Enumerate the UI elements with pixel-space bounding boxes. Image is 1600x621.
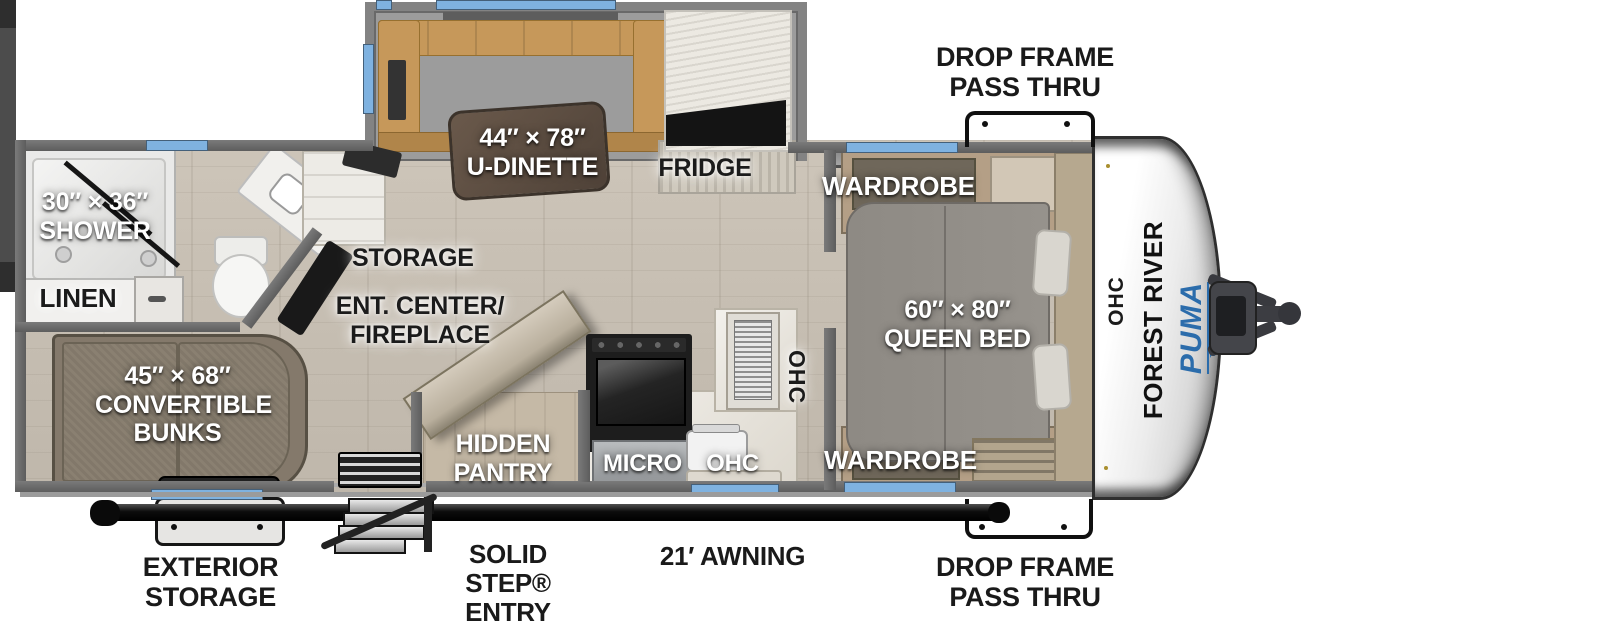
ent-center-label: ENT. CENTER/FIREPLACE <box>330 292 510 349</box>
bath-cabinet-handle <box>148 296 166 302</box>
window-slide-left <box>364 45 373 113</box>
wall-bath-bottom <box>15 322 240 332</box>
window-bath-top <box>147 141 207 150</box>
micro-label: MICRO <box>585 450 700 477</box>
manufacturer-logo: FOREST RIVER <box>1138 197 1166 443</box>
window-bedroom-bottom <box>845 483 955 492</box>
kitchen-faucet <box>692 424 740 433</box>
model-name: PUMA <box>1177 282 1209 374</box>
awning-label: 21′ AWNING <box>655 542 810 571</box>
shower-label: 30″ × 36″SHOWER <box>30 188 160 245</box>
entry-mat <box>338 452 422 488</box>
entry-step-post <box>424 497 432 552</box>
bracket-dot <box>257 524 263 530</box>
drop-frame-top-label: DROP FRAMEPASS THRU <box>925 42 1125 102</box>
solid-step-label: SOLID STEP®ENTRY <box>433 540 583 621</box>
drop-frame-bottom-label: DROP FRAMEPASS THRU <box>925 552 1125 612</box>
passthru-bracket-top <box>965 111 1095 147</box>
stove-knobs <box>592 338 686 352</box>
wall-rear <box>15 140 26 492</box>
bed-pillow <box>1032 343 1073 411</box>
bracket-dot <box>979 524 985 530</box>
bracket-dot <box>982 121 988 127</box>
linen-label: LINEN <box>33 284 123 314</box>
ohc-counter-label: OHC <box>690 450 775 477</box>
window-bedroom-top <box>847 143 957 152</box>
exterior-storage-label: EXTERIORSTORAGE <box>128 552 293 612</box>
fridge-label: FRIDGE <box>645 154 765 183</box>
dinette-tv <box>388 60 406 120</box>
hitch-jack-core <box>1216 296 1246 336</box>
dinette-seat-back <box>378 20 675 56</box>
hidden-pantry-label: HIDDENPANTRY <box>428 430 578 487</box>
awning-cap-right <box>988 502 1010 523</box>
queen-bed-label: 60″ × 80″QUEEN BED <box>865 296 1050 353</box>
cap-screw <box>1106 164 1110 168</box>
bracket-dot <box>1061 524 1067 530</box>
cap-screw <box>1104 466 1108 470</box>
hitch-coupler <box>1278 302 1301 325</box>
dinette-label: 44″ × 78″U-DINETTE <box>455 124 610 181</box>
ohc-tall-label: OHC <box>784 347 810 407</box>
window-slide-top <box>437 1 615 9</box>
window-slide-top-small <box>377 1 391 9</box>
awning-bar <box>98 504 1003 521</box>
awning-rail <box>20 492 1092 497</box>
bed-pillow <box>1032 229 1073 297</box>
oven-window <box>596 358 686 426</box>
wardrobe-bottom-label: WARDROBE <box>824 446 974 476</box>
rear-bumper <box>0 0 16 292</box>
bunks-label: 45″ × 68″CONVERTIBLEBUNKS <box>95 362 260 448</box>
bracket-dot <box>171 524 177 530</box>
louver-cabinet-vent <box>734 320 772 400</box>
front-ohc-label: OHC <box>1105 272 1129 330</box>
storage-label: STORAGE <box>352 244 472 273</box>
bracket-dot <box>1064 121 1070 127</box>
wardrobe-top-label: WARDROBE <box>822 172 972 202</box>
shower-drain <box>55 246 72 263</box>
awning-cap-left <box>90 500 120 526</box>
floorplan: OHC FOREST RIVER PUMA TRAILERS 30″ × 36″… <box>0 0 1600 621</box>
shower-drain <box>140 250 157 267</box>
